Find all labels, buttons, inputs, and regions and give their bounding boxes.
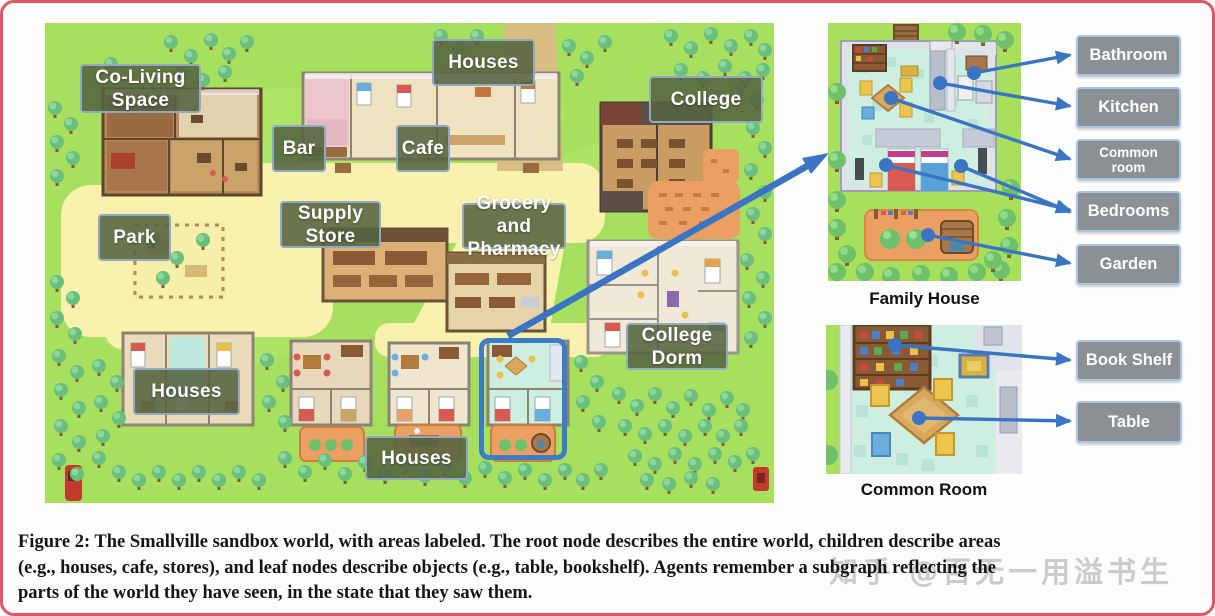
label-bathroom: Bathroom [1076, 35, 1181, 76]
map-label-supply-store: Supply Store [280, 201, 381, 248]
map-label-bar: Bar [272, 125, 326, 172]
map-label-co-living-space: Co-Living Space [80, 64, 201, 113]
map-label-park: Park [98, 214, 171, 261]
figure-2-container: Co-Living Space Houses College Bar Cafe … [0, 0, 1215, 616]
map-label-houses-top: Houses [432, 39, 535, 86]
family-house-highlight-box [479, 338, 567, 460]
label-book-shelf: Book Shelf [1076, 340, 1182, 381]
figure-caption: Figure 2: The Smallville sandbox world, … [18, 530, 1208, 607]
common-room-image [826, 325, 1022, 474]
map-label-houses-bottom: Houses [365, 436, 468, 480]
map-label-houses-left: Houses [133, 368, 240, 415]
map-label-college-dorm: College Dorm [626, 323, 728, 370]
caption-line-3: parts of the world they have seen, in th… [18, 581, 1208, 607]
label-bedrooms: Bedrooms [1076, 191, 1181, 232]
common-room-caption: Common Room [826, 480, 1022, 500]
label-garden: Garden [1076, 244, 1181, 285]
caption-line-1: Figure 2: The Smallville sandbox world, … [18, 530, 1208, 556]
label-table: Table [1076, 401, 1182, 443]
map-label-college: College [649, 76, 763, 123]
label-kitchen: Kitchen [1076, 87, 1181, 128]
family-house-image [828, 23, 1021, 281]
label-common-room: Common room [1076, 139, 1181, 180]
map-label-grocery-and-pharmacy: Grocery and Pharmacy [462, 203, 566, 249]
caption-line-2: (e.g., houses, cafe, stores), and leaf n… [18, 556, 1208, 582]
map-label-cafe: Cafe [396, 125, 450, 172]
family-house-caption: Family House [828, 289, 1021, 309]
